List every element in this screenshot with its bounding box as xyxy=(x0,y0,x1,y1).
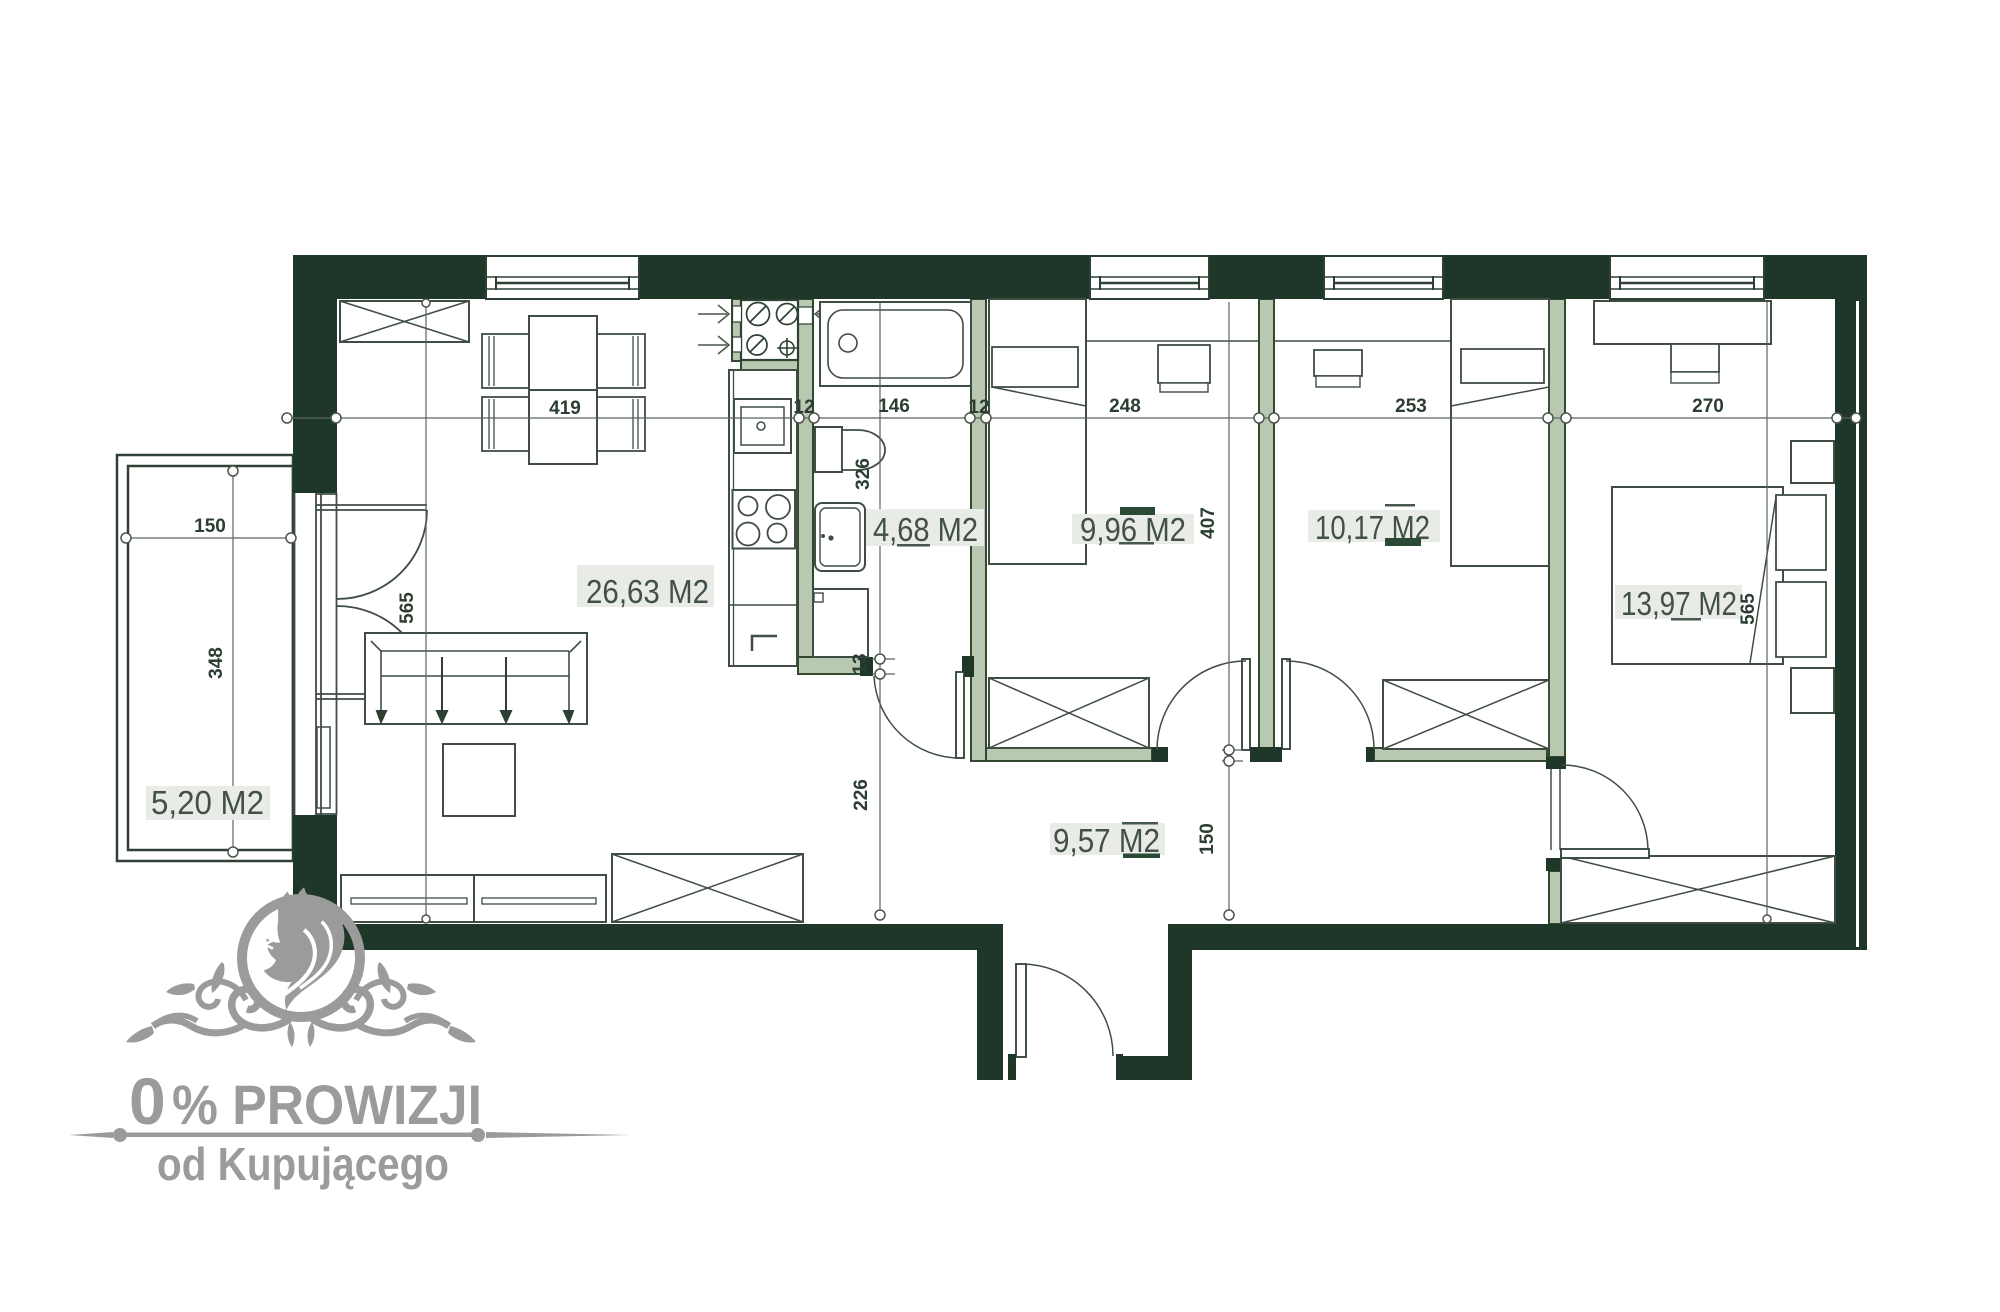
svg-text:9,57 M2: 9,57 M2 xyxy=(1053,822,1160,859)
svg-text:326: 326 xyxy=(853,458,874,490)
svg-text:419: 419 xyxy=(549,398,581,419)
svg-text:12: 12 xyxy=(793,397,814,418)
svg-text:5,20 M2: 5,20 M2 xyxy=(151,784,264,821)
svg-text:% PROWIZJI: % PROWIZJI xyxy=(172,1073,482,1136)
svg-text:248: 248 xyxy=(1109,396,1141,417)
svg-text:565: 565 xyxy=(397,592,418,624)
svg-text:150: 150 xyxy=(194,516,226,537)
svg-text:13: 13 xyxy=(850,653,871,674)
svg-text:146: 146 xyxy=(878,396,910,417)
svg-text:565: 565 xyxy=(1738,593,1759,625)
svg-text:12: 12 xyxy=(968,397,989,418)
svg-text:13,97 M2: 13,97 M2 xyxy=(1621,585,1737,622)
svg-text:4,68 M2: 4,68 M2 xyxy=(873,511,978,548)
svg-text:od Kupującego: od Kupującego xyxy=(157,1138,449,1190)
svg-text:253: 253 xyxy=(1395,396,1427,417)
svg-text:348: 348 xyxy=(206,647,227,679)
svg-text:0: 0 xyxy=(129,1064,166,1138)
svg-text:26,63 M2: 26,63 M2 xyxy=(586,573,709,610)
svg-text:226: 226 xyxy=(851,779,872,811)
svg-text:150: 150 xyxy=(1197,823,1218,855)
svg-text:270: 270 xyxy=(1692,396,1724,417)
svg-text:407: 407 xyxy=(1198,507,1219,539)
